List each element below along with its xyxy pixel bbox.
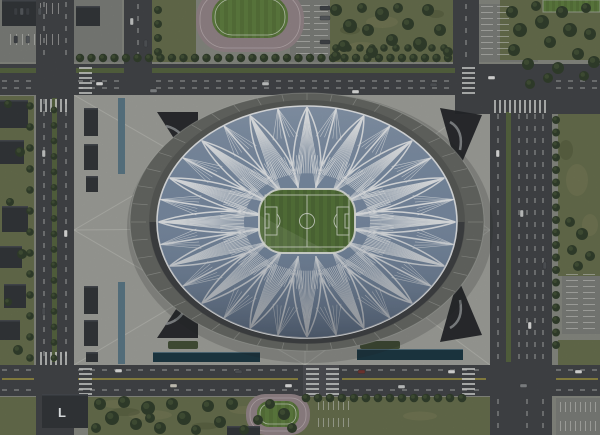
scene-layers (0, 0, 600, 435)
render-canvas: L (0, 0, 600, 435)
grain-overlay (0, 0, 600, 435)
rooftop-letter-label: L (58, 405, 66, 420)
aerial-stadium-render: L (0, 0, 600, 435)
